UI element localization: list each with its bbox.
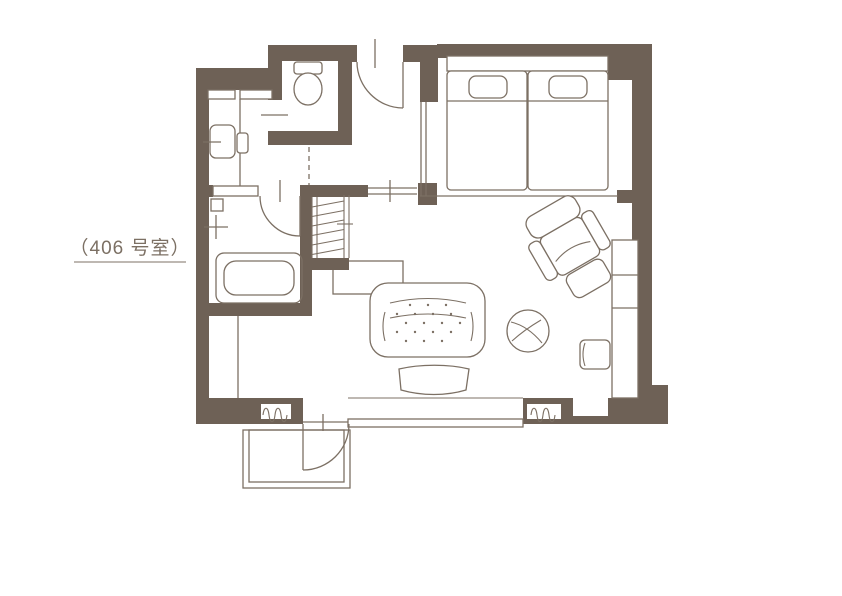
- wall-left: [196, 68, 209, 398]
- twin-beds: [447, 56, 608, 190]
- toilet-icon: [294, 73, 322, 105]
- recliner-chair: [515, 188, 627, 308]
- bathroom: [204, 199, 302, 398]
- door-swing-icon: [357, 62, 403, 108]
- door-swing-icon: [303, 424, 349, 470]
- stool: [580, 340, 610, 369]
- cabinet-icon: [240, 90, 272, 99]
- sofa-icon: [370, 283, 485, 357]
- bath-threshold: [213, 186, 258, 196]
- wall-top-right-corner: [608, 44, 652, 80]
- wall-top-left: [196, 68, 268, 90]
- room-label: （406 号室）: [70, 237, 191, 262]
- shower-control-icon: [211, 199, 223, 211]
- wall-notch-right: [573, 398, 608, 416]
- window-bottom: [348, 398, 523, 427]
- round-table-icon: [507, 310, 549, 352]
- pillow-icon: [469, 76, 507, 98]
- floor-plan-page: （406 号室）: [0, 0, 842, 596]
- vanity-area: [203, 90, 272, 186]
- towel-rack-icon: [237, 133, 248, 153]
- window-icon: [348, 419, 523, 427]
- terrace-door: [303, 414, 349, 470]
- headboard: [447, 56, 608, 71]
- wall-alcove-stub-right: [617, 190, 634, 203]
- toilet-tank: [294, 62, 322, 74]
- wall-closet-bottom: [300, 258, 349, 270]
- console-desk-icon: [612, 240, 638, 398]
- wall-toilet-right: [338, 45, 352, 145]
- hall-passage: [368, 180, 417, 202]
- ottoman-icon: [399, 365, 469, 394]
- cabinet-icon: [208, 90, 235, 99]
- toilet-room: [294, 62, 322, 105]
- wall-right-upper: [632, 80, 652, 240]
- floor-plan: （406 号室）: [0, 0, 842, 596]
- wall-bath-bottom: [196, 303, 312, 316]
- wall-hall-bath-left: [196, 185, 213, 197]
- bathtub-inner: [224, 261, 294, 295]
- closet: [312, 195, 353, 258]
- round-table: [507, 310, 549, 352]
- wall-alcove-column: [420, 45, 438, 102]
- pillow-icon: [549, 76, 587, 98]
- entrance-door: [357, 39, 403, 108]
- wall-top-mid-a: [350, 45, 357, 62]
- room-label-text: （406 号室）: [70, 237, 191, 259]
- wall-right-lower: [637, 240, 652, 398]
- sofa: [370, 283, 485, 357]
- console-desk: [612, 240, 638, 398]
- entry-porch: [243, 430, 350, 488]
